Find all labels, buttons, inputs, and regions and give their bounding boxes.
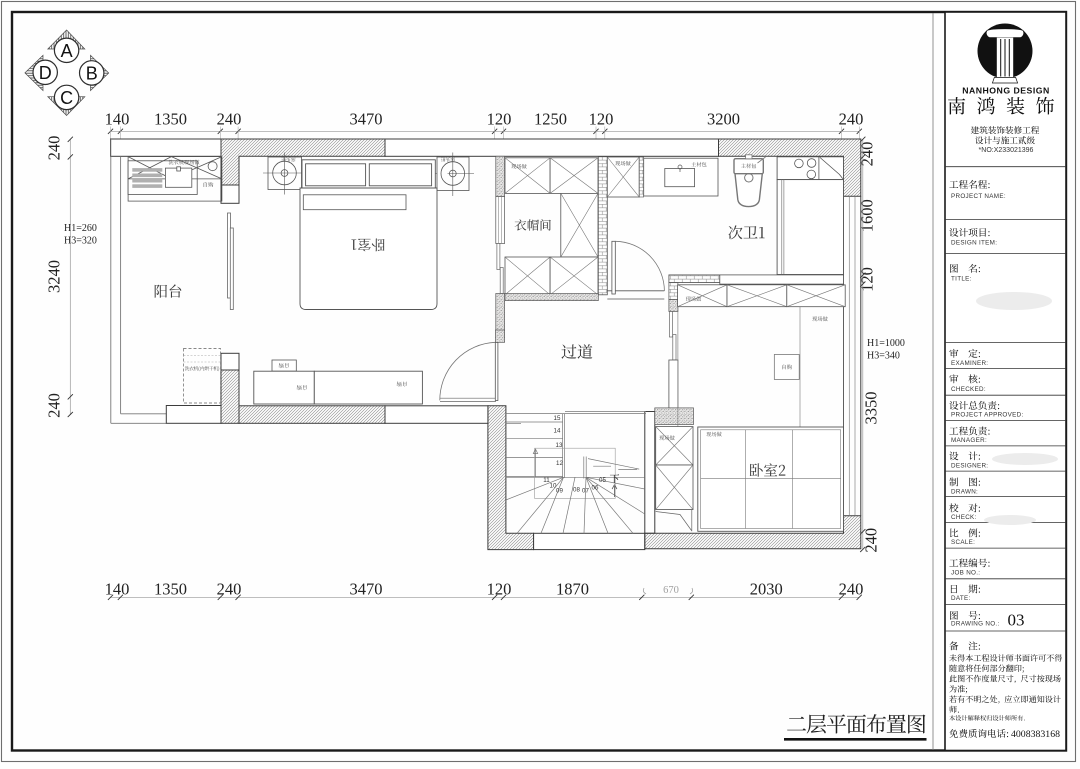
svg-text:120: 120 — [487, 110, 512, 129]
svg-text:14: 14 — [554, 427, 561, 434]
svg-text:MANAGER:: MANAGER: — [951, 437, 987, 444]
svg-text:EXAMINER:: EXAMINER: — [951, 360, 988, 367]
svg-text:DESIGN ITEM:: DESIGN ITEM: — [951, 240, 997, 247]
svg-text:3240: 3240 — [45, 260, 64, 293]
svg-text:3470: 3470 — [350, 580, 383, 599]
svg-text:PROJECT APPROVED:: PROJECT APPROVED: — [951, 412, 1024, 419]
svg-text:A: A — [61, 41, 73, 61]
svg-text:H3=340: H3=340 — [867, 351, 900, 362]
svg-text:NANHONG DESIGN: NANHONG DESIGN — [962, 86, 1050, 96]
svg-text:SCALE:: SCALE: — [951, 539, 975, 546]
svg-text:12: 12 — [556, 460, 563, 467]
svg-text:3470: 3470 — [350, 110, 383, 129]
svg-text:CHECKED:: CHECKED: — [951, 386, 986, 393]
svg-text:240: 240 — [217, 110, 242, 129]
svg-text:1870: 1870 — [556, 580, 589, 599]
svg-text:2030: 2030 — [750, 580, 783, 599]
svg-text:4008383168: 4008383168 — [1011, 729, 1060, 740]
svg-text:PROJECT NAME:: PROJECT NAME: — [951, 193, 1006, 200]
svg-text:TITLE:: TITLE: — [951, 276, 972, 283]
svg-text:CHECK:: CHECK: — [951, 514, 977, 521]
svg-text:DRAWING NO.:: DRAWING NO.: — [951, 621, 1000, 628]
svg-text:DATE:: DATE: — [951, 595, 971, 602]
svg-text:120: 120 — [589, 110, 614, 129]
svg-text:140: 140 — [105, 110, 130, 129]
svg-text:240: 240 — [45, 393, 64, 418]
svg-text:DRAWN:: DRAWN: — [951, 489, 978, 496]
svg-text:13: 13 — [556, 442, 563, 449]
svg-text:H3=320: H3=320 — [64, 236, 97, 247]
svg-text:B: B — [86, 63, 98, 83]
svg-text:09: 09 — [556, 488, 563, 495]
svg-text:03: 03 — [1008, 611, 1025, 630]
svg-text:07: 07 — [582, 488, 589, 495]
svg-text:08: 08 — [573, 487, 580, 494]
svg-text:140: 140 — [105, 580, 130, 599]
svg-text:*NO:X233021396: *NO:X233021396 — [979, 147, 1034, 154]
svg-text:240: 240 — [217, 580, 242, 599]
svg-text:240: 240 — [45, 136, 64, 161]
svg-text:DESIGNER:: DESIGNER: — [951, 463, 988, 470]
svg-text:D: D — [39, 63, 52, 83]
svg-text:H1=260: H1=260 — [64, 223, 97, 234]
svg-text:JOB NO.:: JOB NO.: — [951, 570, 980, 577]
svg-text:06: 06 — [592, 485, 599, 492]
svg-text:120: 120 — [487, 580, 512, 599]
svg-text:1350: 1350 — [154, 110, 187, 129]
svg-text:H1=1000: H1=1000 — [867, 338, 905, 349]
svg-text:C: C — [60, 88, 73, 108]
svg-text:3200: 3200 — [707, 110, 740, 129]
svg-text:3350: 3350 — [862, 392, 881, 425]
svg-text:240: 240 — [839, 110, 864, 129]
svg-text:240: 240 — [862, 528, 881, 553]
svg-text:1350: 1350 — [154, 580, 187, 599]
svg-text:1250: 1250 — [534, 110, 567, 129]
svg-text:240: 240 — [839, 580, 864, 599]
svg-text:670: 670 — [663, 585, 679, 596]
svg-text:15: 15 — [554, 415, 561, 422]
svg-text:05: 05 — [599, 477, 606, 484]
